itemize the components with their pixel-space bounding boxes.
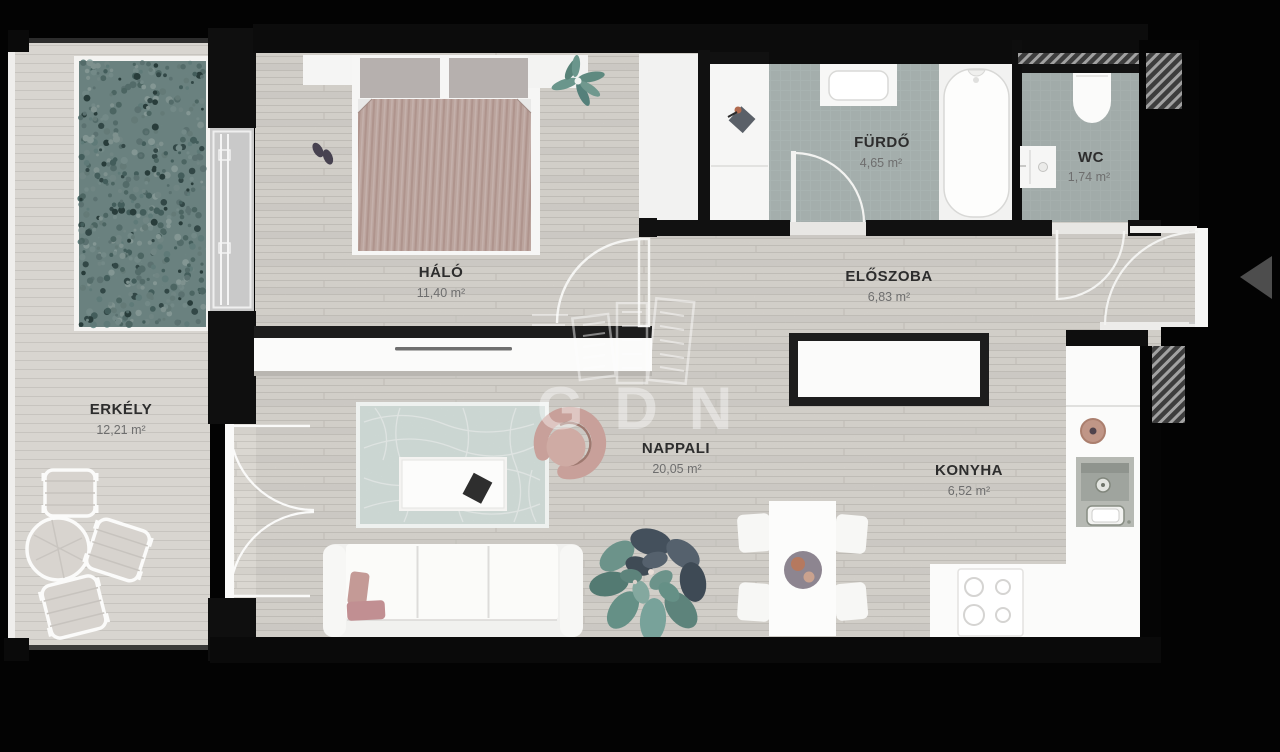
svg-text:4,65 m²: 4,65 m² xyxy=(860,156,902,170)
svg-text:11,40 m²: 11,40 m² xyxy=(417,286,465,300)
svg-text:FÜRDŐ: FÜRDŐ xyxy=(854,133,910,151)
svg-text:ERKÉLY: ERKÉLY xyxy=(90,401,152,418)
svg-text:NAPPALI: NAPPALI xyxy=(642,440,710,457)
svg-text:HÁLÓ: HÁLÓ xyxy=(419,263,464,281)
svg-text:6,83 m²: 6,83 m² xyxy=(868,290,910,304)
svg-text:GDN: GDN xyxy=(537,375,763,442)
svg-text:6,52 m²: 6,52 m² xyxy=(948,484,990,498)
svg-text:WC: WC xyxy=(1078,149,1104,166)
svg-text:ELŐSZOBA: ELŐSZOBA xyxy=(845,267,932,285)
svg-text:12,21 m²: 12,21 m² xyxy=(96,423,145,437)
svg-text:1,74 m²: 1,74 m² xyxy=(1068,170,1110,184)
svg-text:KONYHA: KONYHA xyxy=(935,462,1003,479)
svg-text:20,05 m²: 20,05 m² xyxy=(652,462,701,476)
